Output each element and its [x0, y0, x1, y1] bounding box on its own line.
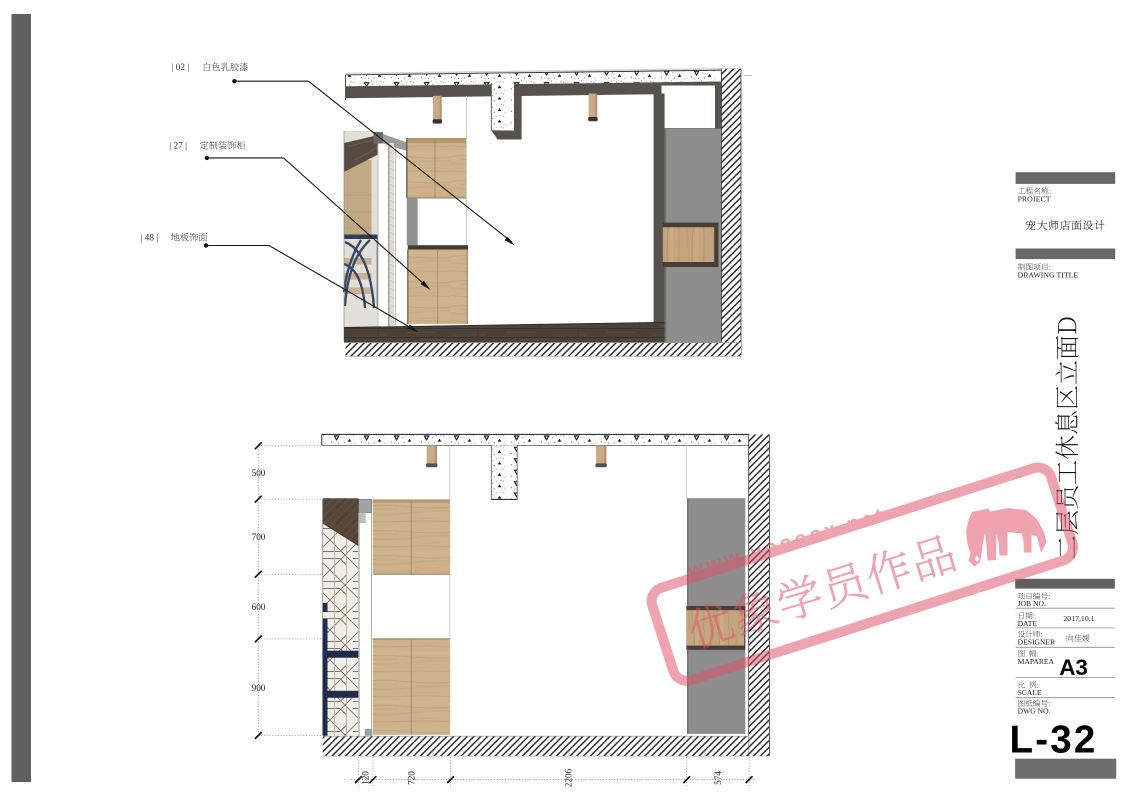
svg-text:DRAWING TITLE: DRAWING TITLE [1018, 270, 1079, 279]
svg-text:| 27 |: | 27 | [169, 141, 187, 151]
svg-text:720: 720 [407, 771, 417, 785]
svg-text:900: 900 [252, 683, 266, 693]
svg-text:L-32: L-32 [1010, 719, 1098, 762]
svg-text:PROJECT: PROJECT [1018, 195, 1051, 204]
svg-text:700: 700 [252, 532, 266, 542]
svg-text:JOB NO.: JOB NO. [1018, 599, 1046, 608]
svg-text:SCALE: SCALE [1018, 688, 1042, 697]
svg-text:120: 120 [361, 771, 371, 785]
svg-text:600: 600 [252, 602, 266, 612]
svg-text:2206: 2206 [564, 768, 574, 787]
svg-text:DESIGNER: DESIGNER [1018, 638, 1056, 647]
svg-text:500: 500 [252, 468, 266, 478]
svg-text:DATE: DATE [1018, 619, 1038, 628]
svg-text:A3: A3 [1059, 655, 1088, 680]
svg-text:| 48 |: | 48 | [141, 233, 159, 243]
svg-text:2017,10,1: 2017,10,1 [1063, 614, 1094, 623]
svg-text:MAPAREA: MAPAREA [1018, 657, 1055, 666]
svg-text:| 02 |: | 02 | [172, 63, 190, 73]
svg-text:574: 574 [713, 771, 723, 785]
svg-text:DWG NO.: DWG NO. [1018, 707, 1051, 716]
